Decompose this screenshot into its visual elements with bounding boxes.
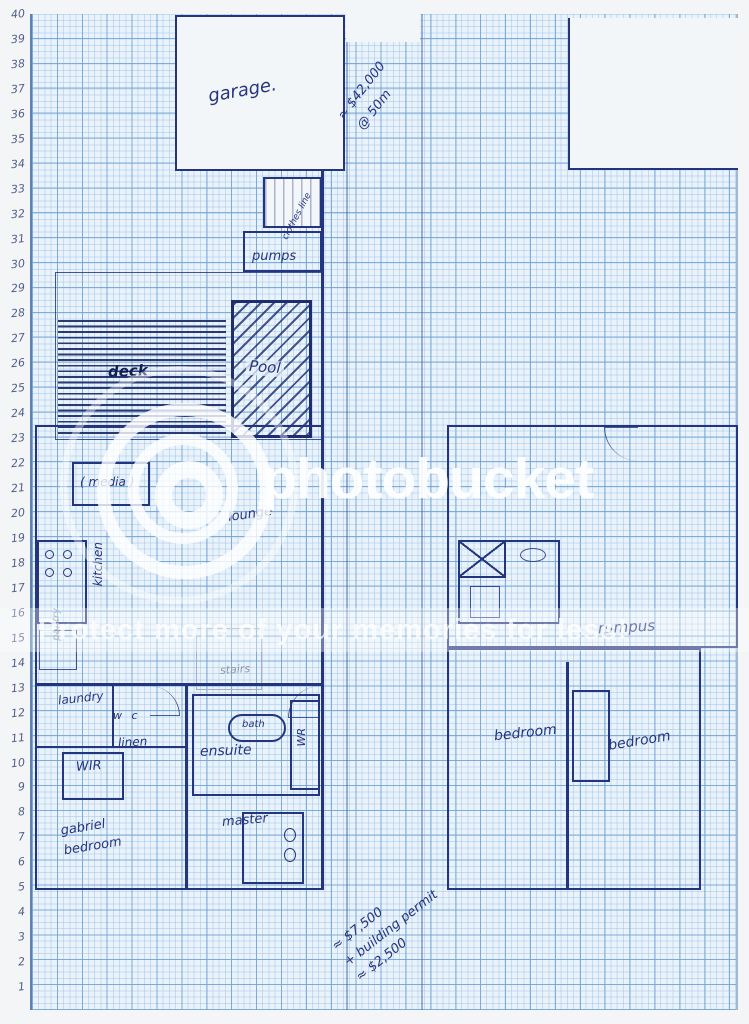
bedroom-divider-wall	[185, 686, 188, 890]
shower-icon	[458, 540, 506, 578]
ruler-number: 33	[2, 182, 25, 197]
hallway-wall	[35, 683, 323, 686]
ruler-number: 19	[2, 531, 25, 546]
ruler-number: 24	[2, 406, 25, 421]
label-master-robe: WR	[296, 728, 308, 747]
ruler-number: 13	[2, 681, 25, 696]
ruler-number: 2	[2, 955, 25, 970]
ruler-number: 9	[2, 780, 25, 795]
label-ensuite: ensuite	[200, 743, 252, 759]
ruler-number: 26	[2, 356, 25, 371]
ruler-number: 8	[2, 805, 25, 820]
watermark-tagline: Protect more of your memories for less!	[38, 614, 718, 647]
ruler-number: 23	[2, 431, 25, 446]
bedrooms-divider-wall	[566, 662, 569, 890]
ruler: 4039383736353433323130292827262524232221…	[0, 0, 30, 1024]
label-wc: w c	[113, 710, 141, 722]
sheet-edge-line	[346, 14, 348, 1010]
stove-burner-icon	[63, 550, 72, 559]
label-stairs: stairs	[220, 663, 251, 677]
ruler-number: 17	[2, 581, 25, 596]
ruler-number: 25	[2, 381, 25, 396]
ruler-number: 10	[2, 755, 25, 770]
pillow-icon	[284, 828, 296, 842]
paper-notch	[346, 0, 420, 42]
ruler-number: 37	[2, 82, 25, 97]
ruler-number: 3	[2, 930, 25, 945]
sheet-edge-line	[421, 14, 423, 1010]
watermark-brand: photobucket	[262, 446, 593, 512]
wir-wall	[37, 746, 185, 748]
ruler-number: 39	[2, 32, 25, 47]
ruler-number: 7	[2, 830, 25, 845]
pillow-icon	[284, 848, 296, 862]
toilet-icon	[520, 548, 546, 562]
ruler-number: 21	[2, 481, 25, 496]
stove-burner-icon	[45, 568, 54, 577]
ruler-number: 27	[2, 331, 25, 346]
label-pumps: pumps	[252, 250, 296, 264]
ruler-number: 28	[2, 306, 25, 321]
label-linen: linen	[118, 735, 148, 749]
ruler-number: 14	[2, 656, 25, 671]
ruler-number: 6	[2, 855, 25, 870]
ruler-number: 18	[2, 556, 25, 571]
ruler-number: 30	[2, 256, 25, 271]
scanned-floor-plan-page: garage. clothes line pumps deck Pool ( m…	[0, 0, 749, 1024]
ruler-number: 20	[2, 506, 25, 521]
ruler-number: 40	[2, 7, 25, 22]
ruler-number: 12	[2, 705, 25, 720]
ruler-number: 22	[2, 456, 25, 471]
ruler-number: 31	[2, 231, 25, 246]
ruler-number: 32	[2, 206, 25, 221]
stove-burner-icon	[45, 550, 54, 559]
ruler-number: 34	[2, 157, 25, 172]
ruler-number: 1	[2, 980, 25, 995]
ruler-number: 36	[2, 107, 25, 122]
ruler-number: 11	[2, 730, 25, 745]
label-wir: WIR	[76, 759, 103, 774]
ruler-number: 38	[2, 57, 25, 72]
ruler-number: 5	[2, 880, 25, 895]
label-bath: bath	[242, 720, 265, 731]
stove-burner-icon	[63, 568, 72, 577]
bed-icon	[572, 690, 610, 782]
top-right-white-area	[568, 18, 738, 170]
label-pool: Pool	[245, 359, 284, 377]
ruler-number: 35	[2, 132, 25, 147]
ruler-number: 29	[2, 281, 25, 296]
ruler-number: 4	[2, 905, 25, 920]
